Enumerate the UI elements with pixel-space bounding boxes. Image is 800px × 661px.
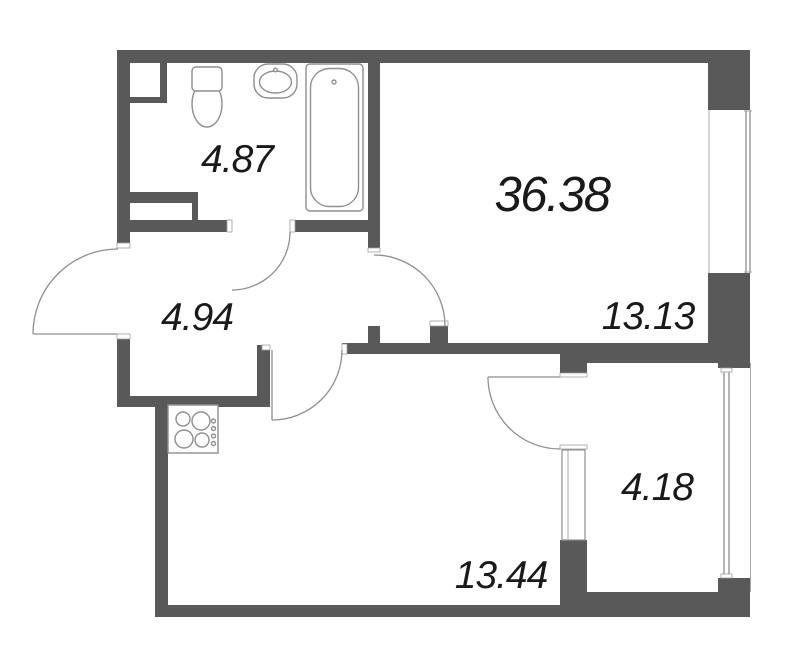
balcony-glazing	[721, 363, 751, 592]
kitchen-area-label: 13.44	[455, 554, 548, 597]
jamb	[227, 220, 232, 232]
sink-basin	[260, 71, 292, 93]
burner	[176, 412, 190, 426]
stove-icon	[168, 405, 218, 453]
glazing-end	[721, 574, 732, 578]
jamb	[368, 248, 380, 252]
sink-tap	[274, 68, 278, 72]
kitchen-door-arc	[272, 350, 342, 420]
hallway-area-label: 4.94	[161, 296, 233, 339]
jamb	[560, 445, 587, 449]
entry-door-arc	[33, 249, 118, 334]
stove-knob	[212, 419, 216, 423]
stove-knob	[212, 427, 216, 431]
burner	[195, 433, 209, 447]
total-area-label: 36.38	[494, 168, 610, 222]
jamb	[290, 220, 295, 232]
jamb	[262, 345, 270, 350]
bathtub-icon	[306, 64, 363, 211]
jamb	[560, 373, 587, 377]
balcony-door-arc	[488, 377, 560, 449]
burner	[175, 430, 193, 448]
window-frame	[562, 450, 585, 540]
jamb	[117, 243, 130, 248]
doors	[33, 232, 560, 449]
living-room-window	[709, 110, 752, 273]
glazing-end	[721, 368, 732, 372]
jamb	[342, 344, 347, 354]
bathroom-door-arc	[232, 232, 290, 290]
stove-outline	[168, 405, 218, 453]
jamb	[117, 334, 130, 339]
living-room-area-label: 13.13	[602, 295, 696, 338]
tub-inner	[311, 69, 359, 207]
stove-knob	[212, 434, 216, 438]
burner	[192, 412, 210, 430]
toilet-tank	[192, 67, 222, 91]
floor-plan: 4.87 36.38 4.94 13.13 4.18 13.44	[0, 0, 800, 661]
floor-plan-canvas: 4.87 36.38 4.94 13.13 4.18 13.44	[0, 0, 800, 661]
balcony-area-label: 4.18	[621, 466, 694, 509]
living-room-door-arc	[374, 255, 445, 326]
tub-drain	[332, 80, 336, 84]
stove-knob	[212, 442, 216, 446]
bathroom-area-label: 4.87	[201, 138, 275, 181]
balcony-window-unit	[562, 450, 585, 540]
sink-icon	[254, 64, 297, 98]
toilet-icon	[192, 67, 222, 127]
